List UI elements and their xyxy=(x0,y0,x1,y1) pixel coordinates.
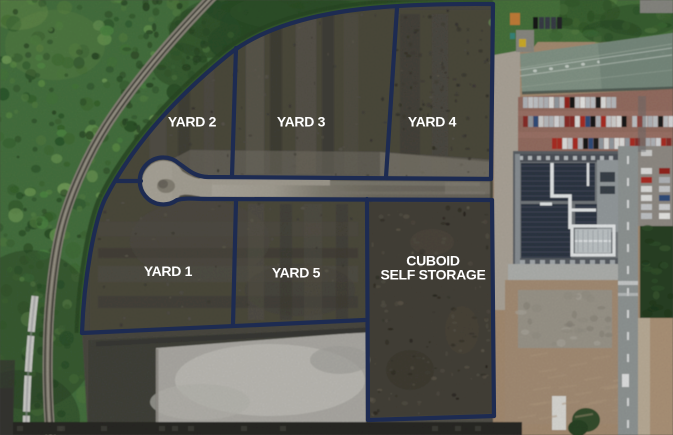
svg-text:YARD 4: YARD 4 xyxy=(408,114,457,130)
svg-text:YARD 1: YARD 1 xyxy=(144,263,193,279)
svg-text:YARD 3: YARD 3 xyxy=(277,114,326,130)
svg-text:YARD 2: YARD 2 xyxy=(168,114,217,130)
svg-text:YARD 5: YARD 5 xyxy=(272,265,321,281)
svg-text:SELF STORAGE: SELF STORAGE xyxy=(380,267,485,283)
